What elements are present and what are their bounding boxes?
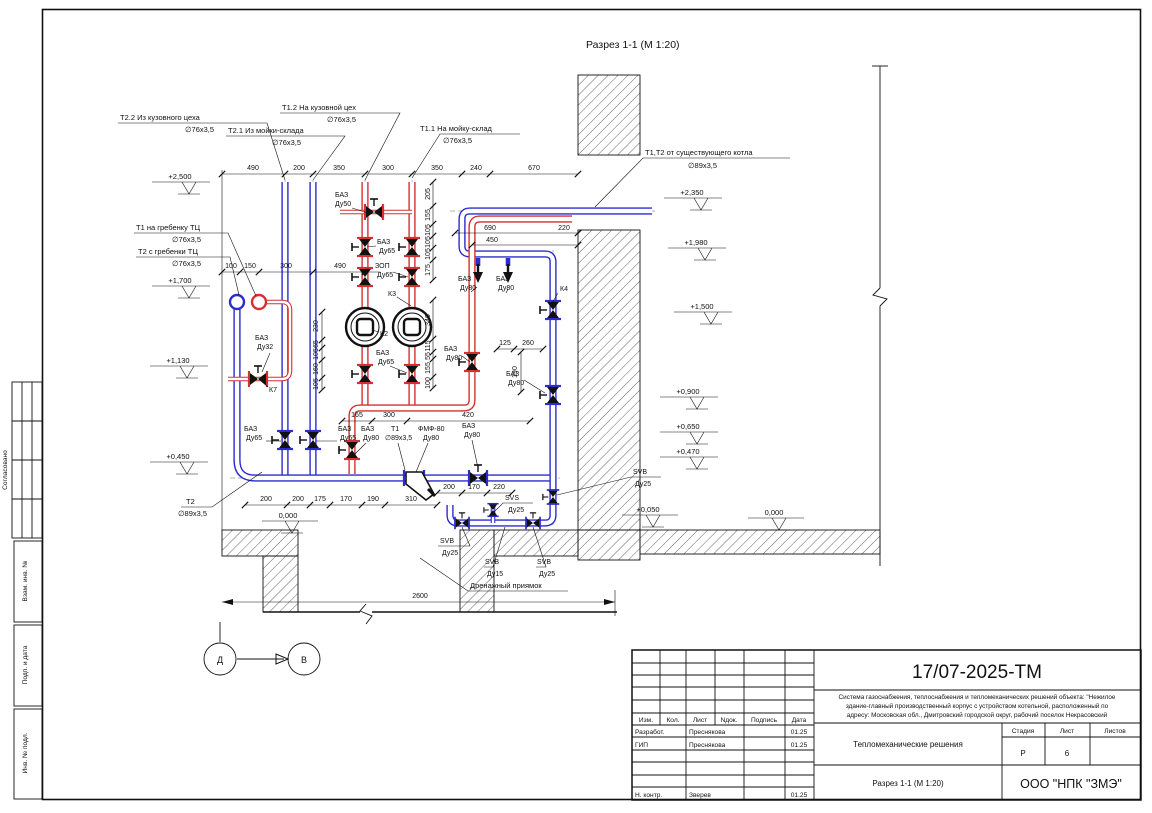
row1-role: Разработ. [635,728,665,736]
col-izm: Изм. [639,717,653,724]
elev-r-0900: +0,900 [676,387,699,396]
tag-baz65-3-size: Ду65 [246,435,262,442]
wall-above-opening [578,75,640,155]
dim-vl-105a: 105 [313,348,320,360]
section-markers: Д В [204,622,320,675]
elev-r-0050: +0,050 [636,505,659,514]
tag-baz65-4: БАЗ [338,426,351,433]
dim-vr-205: 205 [425,188,432,200]
tag-svb15-size: Ду15 [487,571,503,578]
tag-baz65-1: БАЗ [377,239,390,246]
row2-role: ГИП [635,742,648,749]
sheets-header: Листов [1104,728,1126,735]
agreed-grid [12,382,42,538]
label-t1comb-dia: ∅76х3,5 [172,235,201,244]
tag-zop-size: Ду65 [377,272,393,279]
col-podpis: Подпись [751,717,778,724]
tag-baz32: БАЗ [255,335,268,342]
tag-svb25-left-size: Ду25 [442,550,458,557]
tag-svb25-wall-size: Ду25 [635,481,651,488]
tag-baz80-c2-size: Ду80 [498,285,514,292]
title-block-grid [632,650,814,800]
label-t2pipe-dia: ∅89х3,5 [178,509,207,518]
tag-svs25-size: Ду25 [508,507,524,514]
tag-baz80-red: БАЗ [444,346,457,353]
label-drain-pit: Дренажный приямок [470,581,542,590]
label-t12-dia: ∅76х3,5 [327,115,356,124]
dim-vl-160: 160 [313,363,320,375]
tag-k3: К3 [388,291,396,298]
tag-svb25-wall: SVB [633,469,647,476]
stage-value: Р [1020,749,1025,758]
dim-vr-340: 340 [425,314,432,326]
drawing-canvas: Согласовано Взам. инв. № Подп. и дата Ин… [0,0,1152,813]
label-t2comb: Т2 с гребенки ТЦ [138,247,198,256]
label-t21: Т2.1 Из мойки-склада [228,126,305,135]
comb-pipe-section-t1 [252,295,266,309]
tag-baz65-1-size: Ду65 [379,248,395,255]
tag-svb25-left: SVB [440,538,454,545]
pit-left-wall [263,556,298,612]
dim-b2-200a: 200 [260,496,272,503]
col-data: Дата [792,717,807,724]
tag-t1-pipe: Т1 [391,426,399,433]
wall-below-opening [578,230,640,530]
dim-top-490: 490 [247,165,259,172]
tag-baz80-drop-size: Ду80 [363,435,379,442]
dim-2600: 2600 [412,593,428,600]
dim-top-240: 240 [470,165,482,172]
label-t2pipe: Т2 [186,497,195,506]
dim-vl-65: 65 [313,340,320,348]
doc-desc-line1: Система газоснабжения, теплоснабжения и … [839,693,1116,701]
dim-vr-155b: 155 [425,362,432,374]
dim-260: 260 [522,340,534,347]
tag-baz50-size: Ду50 [335,201,351,208]
dim-450: 450 [486,237,498,244]
tag-baz65-2-size: Ду65 [378,359,394,366]
dim-l2-100: 100 [225,263,237,270]
tag-t1-pipe-size: ∅89х3,5 [385,435,412,442]
sidebar-stamp-column: Согласовано Взам. инв. № Подп. и дата Ин… [2,382,42,799]
drawing-sheet: Согласовано Взам. инв. № Подп. и дата Ин… [0,0,1152,813]
doc-desc-line2: здание-главный производственный корпус с… [846,702,1109,710]
tag-zop: ЗОП [375,263,390,270]
elev-r-1980: +1,980 [684,238,707,247]
tag-baz80-drop: БАЗ [361,426,374,433]
tag-baz50: БАЗ [335,192,348,199]
marker-letter-v: В [301,655,307,665]
elev-r-1500: +1,500 [690,302,713,311]
label-t21-dia: ∅76х3,5 [272,138,301,147]
dim-420: 420 [462,412,474,419]
view-ref: Разрез 1-1 (М 1:20) [872,779,944,788]
tag-baz80-blue-size: Ду80 [508,380,524,387]
dim-top-200: 200 [293,165,305,172]
dim-vl-105b: 105 [313,378,320,390]
dim-top-670: 670 [528,165,540,172]
title-block: Изм. Кол. Лист Nдок. Подпись Дата Разраб… [632,650,1141,800]
dim-vr-55: 55 [425,352,432,360]
dim-vr-115: 115 [425,340,432,351]
tag-baz80-header: БАЗ [462,423,475,430]
dim-top-300: 300 [382,165,394,172]
label-t11: Т1.1 На мойку-склад [420,124,493,133]
tag-baz80-c1: БАЗ [458,276,471,283]
dim-vr-175: 175 [425,264,432,276]
label-t11-dia: ∅76х3,5 [443,136,472,145]
tag-fmf80-size: Ду80 [423,435,439,442]
tag-svb25-right-size: Ду25 [539,571,555,578]
dim-vr-105b: 105 [425,236,432,248]
section-cut-line [872,66,888,566]
elev-r-2350: +2,350 [680,188,703,197]
dim-b2-170: 170 [340,496,352,503]
label-t22-dia: ∅76х3,5 [185,125,214,134]
label-t22: Т2.2 Из кузовного цеха [120,113,201,122]
tag-baz80-c1-size: Ду80 [460,285,476,292]
wall-footing [578,530,640,560]
dim-top-350a: 350 [333,165,345,172]
dim-vr-105a: 105 [425,224,432,236]
dim-b3-220: 220 [493,484,505,491]
tag-fmf80: ФМФ-80 [418,426,445,433]
pump-k3 [393,308,431,346]
doc-desc-line3: адресу: Московская обл., Дмитровский гор… [847,711,1108,719]
doc-title: Тепломеханические решения [853,740,963,749]
sidebar-label-agreed: Согласовано [2,450,9,490]
row1-date: 01.25 [791,729,808,736]
elev-r-0000: 0,000 [765,508,784,517]
tag-baz32-size: Ду32 [257,344,273,351]
row1-name: Преснякова [689,729,726,736]
row3-name: Зверев [689,792,711,799]
elev-l-2500: +2,500 [168,172,191,181]
doc-code: 17/07-2025-ТМ [912,662,1042,683]
col-kol: Кол. [666,717,679,724]
dim-b2-175: 175 [314,496,326,503]
row3-date: 01.25 [791,792,808,799]
sheet-value: 6 [1065,749,1070,758]
tag-baz80-c2: БАЗ [496,276,509,283]
col-ndok: Nдок. [721,717,738,724]
elev-r-0650: +0,650 [676,422,699,431]
elev-l-0450: +0,450 [166,452,189,461]
row3-role: Н. контр. [635,792,662,799]
sidebar-label-vzam: Взам. инв. № [22,561,29,602]
tag-baz80-header-size: Ду80 [464,432,480,439]
dim-165: 165 [351,412,363,419]
dim-vr-100: 100 [425,377,432,389]
pit-bottom-break [360,604,372,624]
tag-k7: К7 [269,387,277,394]
tag-baz65-3: БАЗ [244,426,257,433]
tag-baz65-4-size: Ду65 [340,435,356,442]
view-title: Разрез 1-1 (М 1:20) [586,39,680,51]
dim-190: 190 [512,366,519,378]
ground-outside [640,530,880,554]
row2-date: 01.25 [791,742,808,749]
elev-floor-0000: 0,000 [279,511,298,520]
dim-b2-200b: 200 [292,496,304,503]
sheet-header: Лист [1060,728,1074,735]
dim-top-350b: 350 [431,165,443,172]
dim-l2-150: 150 [244,263,256,270]
stage-header: Стадия [1012,728,1035,735]
dim-b3-200: 200 [443,484,455,491]
tag-baz65-2: БАЗ [376,350,389,357]
tag-svb25-right: SVB [537,559,551,566]
dim-vr-105c: 105 [425,248,432,260]
tag-baz80-red-size: Ду80 [446,355,462,362]
floor-right [494,530,578,556]
label-t1comb: Т1 на гребенку ТЦ [136,223,201,232]
dim-b3-170: 170 [468,484,480,491]
dim-125: 125 [499,340,511,347]
dim-220: 220 [558,225,570,232]
comb-pipe-section-t2 [230,295,244,309]
dim-b2-190: 190 [367,496,379,503]
col-list: Лист [693,717,707,724]
tag-svs25: SVS [505,495,519,502]
company-name: ООО "НПК "ЗМЭ" [1020,777,1122,791]
label-t12: Т1.2 На кузовной цех [282,103,356,112]
dim-l2-490: 490 [334,263,346,270]
dim-l2-300: 300 [280,263,292,270]
dim-b2-310: 310 [405,496,417,503]
dim-300b: 300 [383,412,395,419]
row2-name: Преснякова [689,742,726,749]
marker-letter-d: Д [217,655,223,665]
dim-vl-230: 230 [313,320,320,332]
sidebar-label-inv: Инв. № подл. [22,732,29,773]
signature-rows: Разработ. Преснякова 01.25 ГИП Пресняков… [635,728,808,799]
label-boiler: Т1,Т2 от существующего котла [645,148,753,157]
tag-k4: К4 [560,286,568,293]
elev-l-1130: +1,130 [166,356,189,365]
tag-svb15: SVB [485,559,499,566]
sidebar-label-podp: Подп. и дата [22,645,29,684]
tag-k2: К2 [380,331,388,338]
floor-left [222,530,298,556]
dim-690: 690 [484,225,496,232]
elev-l-1700: +1,700 [168,276,191,285]
label-t2comb-dia: ∅76х3,5 [172,259,201,268]
label-boiler-dia: ∅89х3,5 [688,161,717,170]
dim-vr-155: 155 [425,209,432,221]
elev-r-0470: +0,470 [676,447,699,456]
pump-k2 [346,308,384,346]
